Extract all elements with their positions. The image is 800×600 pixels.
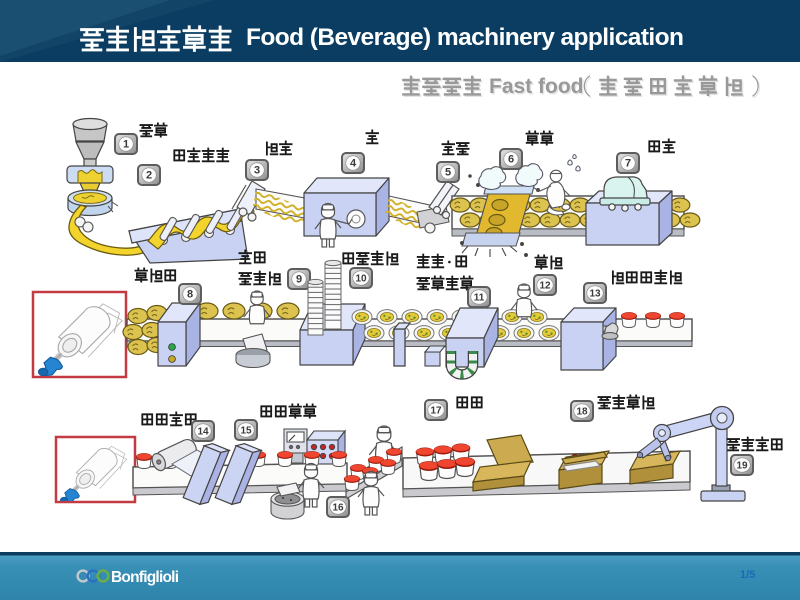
svg-text:9: 9 xyxy=(296,274,302,286)
svg-text:3: 3 xyxy=(254,165,260,177)
svg-text:13: 13 xyxy=(589,289,601,300)
svg-text:2: 2 xyxy=(146,170,152,182)
svg-text:11: 11 xyxy=(474,293,485,304)
svg-text:12: 12 xyxy=(539,281,551,292)
svg-text:7: 7 xyxy=(625,158,631,170)
svg-text:5: 5 xyxy=(445,167,451,179)
svg-text:17: 17 xyxy=(430,406,442,417)
svg-text:19: 19 xyxy=(736,461,748,472)
svg-text:18: 18 xyxy=(576,407,588,418)
svg-text:14: 14 xyxy=(197,427,209,438)
svg-text:Bonfiglioli: Bonfiglioli xyxy=(111,569,179,586)
svg-text:1/5: 1/5 xyxy=(740,569,755,581)
svg-text:6: 6 xyxy=(508,154,514,166)
svg-text:8: 8 xyxy=(187,289,193,301)
svg-text:Fast food: Fast food xyxy=(489,75,584,98)
svg-text:1: 1 xyxy=(123,139,129,151)
svg-text:Food (Beverage) machinery appl: Food (Beverage) machinery application xyxy=(246,24,684,51)
svg-text:15: 15 xyxy=(240,426,252,437)
svg-text:16: 16 xyxy=(332,503,344,514)
svg-text:10: 10 xyxy=(355,274,367,285)
svg-text:4: 4 xyxy=(350,158,357,170)
